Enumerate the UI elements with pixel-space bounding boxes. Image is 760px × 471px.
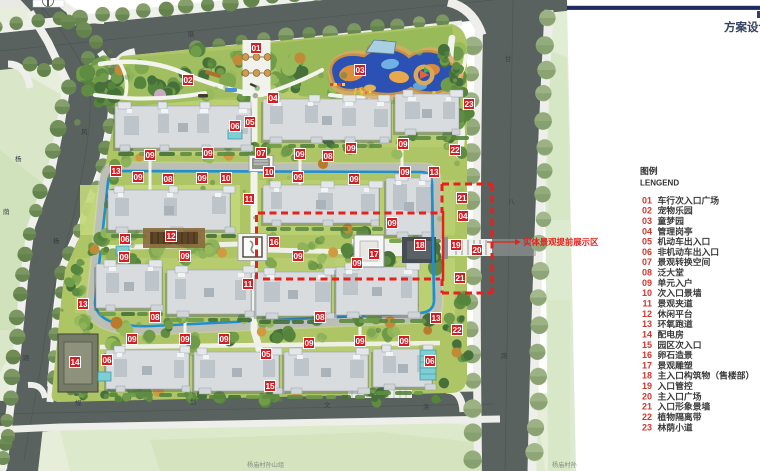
svg-text:荫: 荫 xyxy=(3,207,10,216)
svg-text:路: 路 xyxy=(23,353,30,362)
svg-text:22: 22 xyxy=(642,412,652,422)
svg-text:09: 09 xyxy=(399,337,409,346)
svg-text:杨庙村孙山组: 杨庙村孙山组 xyxy=(247,461,284,469)
svg-text:非机动车出入口: 非机动车出入口 xyxy=(658,246,720,257)
svg-text:01: 01 xyxy=(251,44,261,53)
svg-text:20: 20 xyxy=(642,391,652,401)
svg-text:划: 划 xyxy=(190,397,197,406)
svg-text:12: 12 xyxy=(166,232,176,241)
svg-text:01: 01 xyxy=(642,195,652,205)
svg-text:甘: 甘 xyxy=(505,54,512,63)
svg-text:02: 02 xyxy=(642,206,652,216)
svg-text:13: 13 xyxy=(111,167,121,176)
svg-text:入口形象景墙: 入口形象景墙 xyxy=(658,401,711,412)
svg-text:11: 11 xyxy=(642,299,652,309)
svg-text:04: 04 xyxy=(458,212,468,221)
svg-text:18: 18 xyxy=(642,371,652,381)
svg-text:08: 08 xyxy=(323,152,333,161)
svg-text:16: 16 xyxy=(269,238,279,247)
svg-text:09: 09 xyxy=(203,149,213,158)
svg-text:09: 09 xyxy=(180,335,190,344)
svg-text:07: 07 xyxy=(256,149,266,158)
svg-text:04: 04 xyxy=(642,226,652,236)
svg-text:04: 04 xyxy=(268,94,278,103)
svg-text:10: 10 xyxy=(221,174,231,183)
svg-text:05: 05 xyxy=(642,237,652,247)
svg-text:卵石造景: 卵石造景 xyxy=(658,349,693,360)
svg-text:机动车出入口: 机动车出入口 xyxy=(658,236,711,247)
svg-text:规: 规 xyxy=(75,398,82,407)
svg-text:21: 21 xyxy=(642,402,652,412)
svg-text:主入口广场: 主入口广场 xyxy=(658,390,702,401)
svg-text:23: 23 xyxy=(464,100,474,109)
svg-text:09: 09 xyxy=(352,259,362,268)
svg-text:13: 13 xyxy=(431,314,441,323)
svg-text:09: 09 xyxy=(642,278,652,288)
svg-text:09: 09 xyxy=(197,174,207,183)
svg-text:08: 08 xyxy=(163,175,173,184)
svg-text:03: 03 xyxy=(642,216,652,226)
svg-text:LENGEND: LENGEND xyxy=(640,179,679,188)
svg-text:杨: 杨 xyxy=(15,154,22,163)
svg-text:09: 09 xyxy=(349,175,359,184)
svg-text:15: 15 xyxy=(642,340,652,350)
svg-text:09: 09 xyxy=(180,252,190,261)
svg-text:八: 八 xyxy=(508,199,515,206)
svg-text:09: 09 xyxy=(398,140,408,149)
svg-text:文: 文 xyxy=(324,400,331,409)
svg-text:05: 05 xyxy=(245,118,255,127)
svg-text:园区次入口: 园区次入口 xyxy=(658,339,702,350)
svg-text:19: 19 xyxy=(451,241,461,250)
svg-text:植物隔离带: 植物隔离带 xyxy=(657,411,702,422)
svg-text:09: 09 xyxy=(304,339,314,348)
svg-text:14: 14 xyxy=(642,330,652,340)
svg-text:林荫小道: 林荫小道 xyxy=(658,421,693,432)
svg-text:06: 06 xyxy=(102,356,112,365)
svg-text:09: 09 xyxy=(400,168,410,177)
svg-text:09: 09 xyxy=(127,335,137,344)
svg-text:20: 20 xyxy=(472,246,482,255)
svg-text:16: 16 xyxy=(642,350,652,360)
svg-text:07: 07 xyxy=(642,257,652,267)
svg-text:09: 09 xyxy=(355,337,365,346)
svg-text:09: 09 xyxy=(387,219,397,228)
svg-text:06: 06 xyxy=(230,122,240,131)
svg-text:路: 路 xyxy=(501,351,508,360)
svg-text:06: 06 xyxy=(425,357,435,366)
svg-text:21: 21 xyxy=(455,274,465,283)
svg-text:宠物乐园: 宠物乐园 xyxy=(658,205,693,216)
svg-text:方案设计: 方案设计 xyxy=(724,20,760,34)
svg-text:09: 09 xyxy=(119,253,129,262)
svg-text:景观夹道: 景观夹道 xyxy=(658,298,693,309)
svg-text:23: 23 xyxy=(642,422,652,432)
svg-text:08: 08 xyxy=(642,268,652,278)
svg-text:洛: 洛 xyxy=(423,402,430,411)
svg-text:杨: 杨 xyxy=(53,236,60,245)
svg-text:10: 10 xyxy=(264,168,274,177)
svg-text:15: 15 xyxy=(265,382,275,391)
svg-text:景观雕塑: 景观雕塑 xyxy=(658,359,693,370)
svg-text:22: 22 xyxy=(450,146,460,155)
svg-text:09: 09 xyxy=(346,144,356,153)
svg-text:休闲平台: 休闲平台 xyxy=(657,308,693,319)
svg-text:13: 13 xyxy=(78,300,88,309)
svg-text:08: 08 xyxy=(315,313,325,322)
svg-text:03: 03 xyxy=(355,66,365,75)
svg-text:12: 12 xyxy=(642,309,652,319)
svg-text:10: 10 xyxy=(642,288,652,298)
svg-text:次入口景墙: 次入口景墙 xyxy=(658,287,702,298)
svg-text:18: 18 xyxy=(415,241,425,250)
svg-text:配电房: 配电房 xyxy=(658,329,685,340)
svg-text:17: 17 xyxy=(642,360,652,370)
svg-text:主入口构筑物（售楼部）: 主入口构筑物（售楼部） xyxy=(658,370,755,381)
svg-text:09: 09 xyxy=(145,151,155,160)
svg-text:09: 09 xyxy=(219,335,229,344)
svg-text:05: 05 xyxy=(261,350,271,359)
svg-text:08: 08 xyxy=(150,313,160,322)
svg-text:童梦园: 童梦园 xyxy=(658,215,685,226)
svg-text:09: 09 xyxy=(293,252,303,261)
svg-text:06: 06 xyxy=(120,235,130,244)
svg-text:实体景观提前展示区: 实体景观提前展示区 xyxy=(523,237,599,247)
svg-text:02: 02 xyxy=(183,76,193,85)
svg-text:17: 17 xyxy=(369,250,379,259)
svg-text:21: 21 xyxy=(457,194,467,203)
svg-text:09: 09 xyxy=(295,150,305,159)
svg-text:11: 11 xyxy=(245,195,254,204)
svg-text:图例: 图例 xyxy=(640,165,658,176)
svg-text:车行次入口广场: 车行次入口广场 xyxy=(658,194,720,205)
svg-text:管理岗亭: 管理岗亭 xyxy=(658,225,693,236)
svg-text:09: 09 xyxy=(293,173,303,182)
svg-text:11: 11 xyxy=(244,280,253,289)
svg-text:19: 19 xyxy=(642,381,652,391)
svg-text:风: 风 xyxy=(81,128,88,136)
svg-text:单元入户: 单元入户 xyxy=(658,277,693,288)
svg-text:景观转换空间: 景观转换空间 xyxy=(658,256,711,267)
svg-text:13: 13 xyxy=(429,168,439,177)
svg-text:14: 14 xyxy=(70,358,80,367)
svg-text:13: 13 xyxy=(642,319,652,329)
svg-text:环氧跑道: 环氧跑道 xyxy=(658,318,693,329)
svg-text:06: 06 xyxy=(642,247,652,257)
svg-text:22: 22 xyxy=(452,326,462,335)
svg-text:09: 09 xyxy=(133,173,143,182)
svg-text:入口管控: 入口管控 xyxy=(658,380,693,391)
svg-text:泛大堂: 泛大堂 xyxy=(658,267,685,278)
